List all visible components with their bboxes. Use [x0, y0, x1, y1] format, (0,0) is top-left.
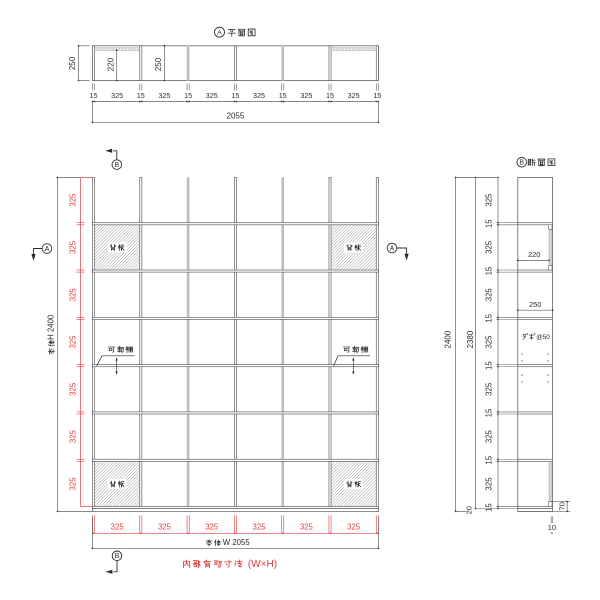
svg-text:325: 325 — [253, 522, 267, 531]
svg-text:325: 325 — [484, 193, 493, 207]
svg-text:325: 325 — [205, 522, 219, 531]
svg-text:B: B — [519, 160, 524, 167]
svg-text:15: 15 — [184, 91, 192, 100]
svg-text:A: A — [217, 29, 222, 36]
svg-text:250: 250 — [154, 57, 163, 71]
svg-text:325: 325 — [484, 477, 493, 491]
svg-text:220: 220 — [106, 57, 115, 71]
svg-text:15: 15 — [484, 219, 493, 228]
svg-text:A: A — [45, 246, 50, 253]
svg-text:15: 15 — [484, 313, 493, 322]
svg-text:325: 325 — [158, 522, 172, 531]
svg-text:325: 325 — [484, 429, 493, 443]
svg-text:15: 15 — [484, 266, 493, 275]
svg-text:15: 15 — [484, 503, 493, 512]
svg-text:325: 325 — [484, 335, 493, 349]
svg-text:15: 15 — [89, 91, 97, 100]
svg-text:15: 15 — [137, 91, 145, 100]
svg-text:15: 15 — [484, 408, 493, 417]
svg-text:B: B — [115, 553, 120, 560]
svg-text:H 2400: H 2400 — [46, 314, 55, 340]
svg-text:20: 20 — [464, 506, 473, 514]
svg-text:15: 15 — [326, 91, 334, 100]
svg-text:2055: 2055 — [227, 112, 245, 121]
svg-text:15: 15 — [231, 91, 239, 100]
svg-text:325: 325 — [484, 382, 493, 396]
svg-text:325: 325 — [484, 240, 493, 254]
svg-text:15: 15 — [484, 455, 493, 464]
svg-text:10: 10 — [548, 523, 556, 532]
svg-text:325: 325 — [68, 382, 77, 396]
svg-text:250: 250 — [68, 56, 77, 70]
svg-text:325: 325 — [111, 91, 123, 100]
svg-text:325: 325 — [484, 288, 493, 302]
svg-text:325: 325 — [68, 288, 77, 302]
svg-text:325: 325 — [348, 91, 360, 100]
svg-text:325: 325 — [158, 91, 170, 100]
svg-text:15: 15 — [373, 91, 381, 100]
svg-text:325: 325 — [68, 429, 77, 443]
svg-text:325: 325 — [68, 240, 77, 254]
svg-text:A: A — [390, 245, 395, 252]
svg-text:325: 325 — [68, 193, 77, 207]
svg-text:325: 325 — [68, 477, 77, 491]
svg-text:250: 250 — [529, 300, 542, 309]
svg-text:70: 70 — [558, 502, 567, 510]
svg-text:15: 15 — [484, 361, 493, 370]
svg-text:325: 325 — [111, 522, 125, 531]
svg-text:325: 325 — [253, 91, 265, 100]
svg-text:325: 325 — [300, 91, 312, 100]
svg-text:325: 325 — [206, 91, 218, 100]
svg-text:220: 220 — [528, 250, 541, 259]
svg-text:15: 15 — [279, 91, 287, 100]
svg-text:2400: 2400 — [444, 330, 453, 348]
svg-text:325: 325 — [300, 522, 314, 531]
svg-text:W 2055: W 2055 — [223, 538, 251, 547]
svg-text:@50: @50 — [536, 334, 550, 341]
svg-text:(W×H): (W×H) — [248, 559, 277, 570]
svg-text:325: 325 — [347, 522, 361, 531]
svg-text:325: 325 — [68, 335, 77, 349]
svg-text:2380: 2380 — [466, 330, 475, 348]
svg-text:B: B — [114, 162, 119, 169]
